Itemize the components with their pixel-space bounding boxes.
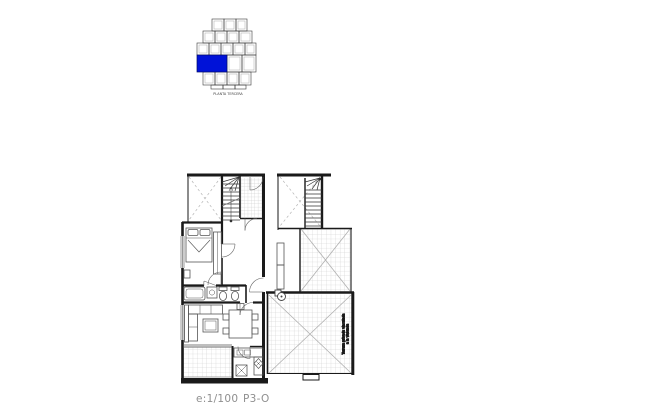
nightstand xyxy=(184,270,190,278)
bedroom-window xyxy=(181,236,184,268)
living-room xyxy=(185,304,259,343)
terrace-step xyxy=(303,375,319,381)
bidet-base xyxy=(231,287,239,291)
footer: e:1/100 P3-O xyxy=(196,393,270,405)
bed-cover-fold xyxy=(188,240,210,252)
sofa-top-section xyxy=(189,305,223,314)
key-plan-caption: PLANTA TERCERA xyxy=(213,92,243,96)
kitchen-counter-side xyxy=(254,357,263,375)
drawing-sheet: PLANTA TERCERA xyxy=(0,0,660,410)
sink-bowl xyxy=(237,350,243,355)
front-terrace-floor xyxy=(183,347,232,377)
void-cross-left xyxy=(189,177,221,220)
chair xyxy=(252,314,258,320)
sink-bowl xyxy=(245,350,251,355)
pillow xyxy=(200,230,210,236)
tiled-bath-floor xyxy=(241,178,263,217)
washbasin xyxy=(207,287,217,298)
unit-plan-right: Terraza privada vinculada a la vivienda xyxy=(266,175,354,380)
key-plan-building-outline xyxy=(197,19,256,89)
kitchen xyxy=(234,348,263,376)
double-bed xyxy=(186,228,212,262)
chair xyxy=(237,304,244,310)
sheet-code: P3-O xyxy=(243,393,270,405)
sofa-side-section xyxy=(189,314,198,341)
sofa-back xyxy=(185,305,189,342)
unit-plan-left xyxy=(181,175,268,384)
floor-plan-svg: PLANTA TERCERA xyxy=(0,0,660,410)
highlighted-unit xyxy=(197,55,227,72)
staircase-left xyxy=(222,177,240,222)
terrace-note-line2: a la vivienda xyxy=(346,324,350,344)
pillow xyxy=(188,230,198,236)
void-cross-right xyxy=(280,177,320,226)
bidet xyxy=(231,291,238,300)
chair xyxy=(223,328,229,334)
toilet xyxy=(219,291,226,300)
terrace-glass-door xyxy=(183,345,232,347)
bathroom xyxy=(184,287,239,301)
toilet-tank xyxy=(219,287,227,291)
bottom-wall-left xyxy=(181,378,268,384)
dining-table xyxy=(229,310,252,338)
key-plan-room-detail xyxy=(199,21,254,83)
scale-label: e:1/100 xyxy=(196,393,238,405)
bedroom xyxy=(184,228,222,278)
chair xyxy=(252,328,258,334)
key-plan: PLANTA TERCERA xyxy=(197,19,256,96)
chair xyxy=(223,314,229,320)
living-window xyxy=(181,305,184,340)
terrace-door-panels xyxy=(277,243,284,289)
